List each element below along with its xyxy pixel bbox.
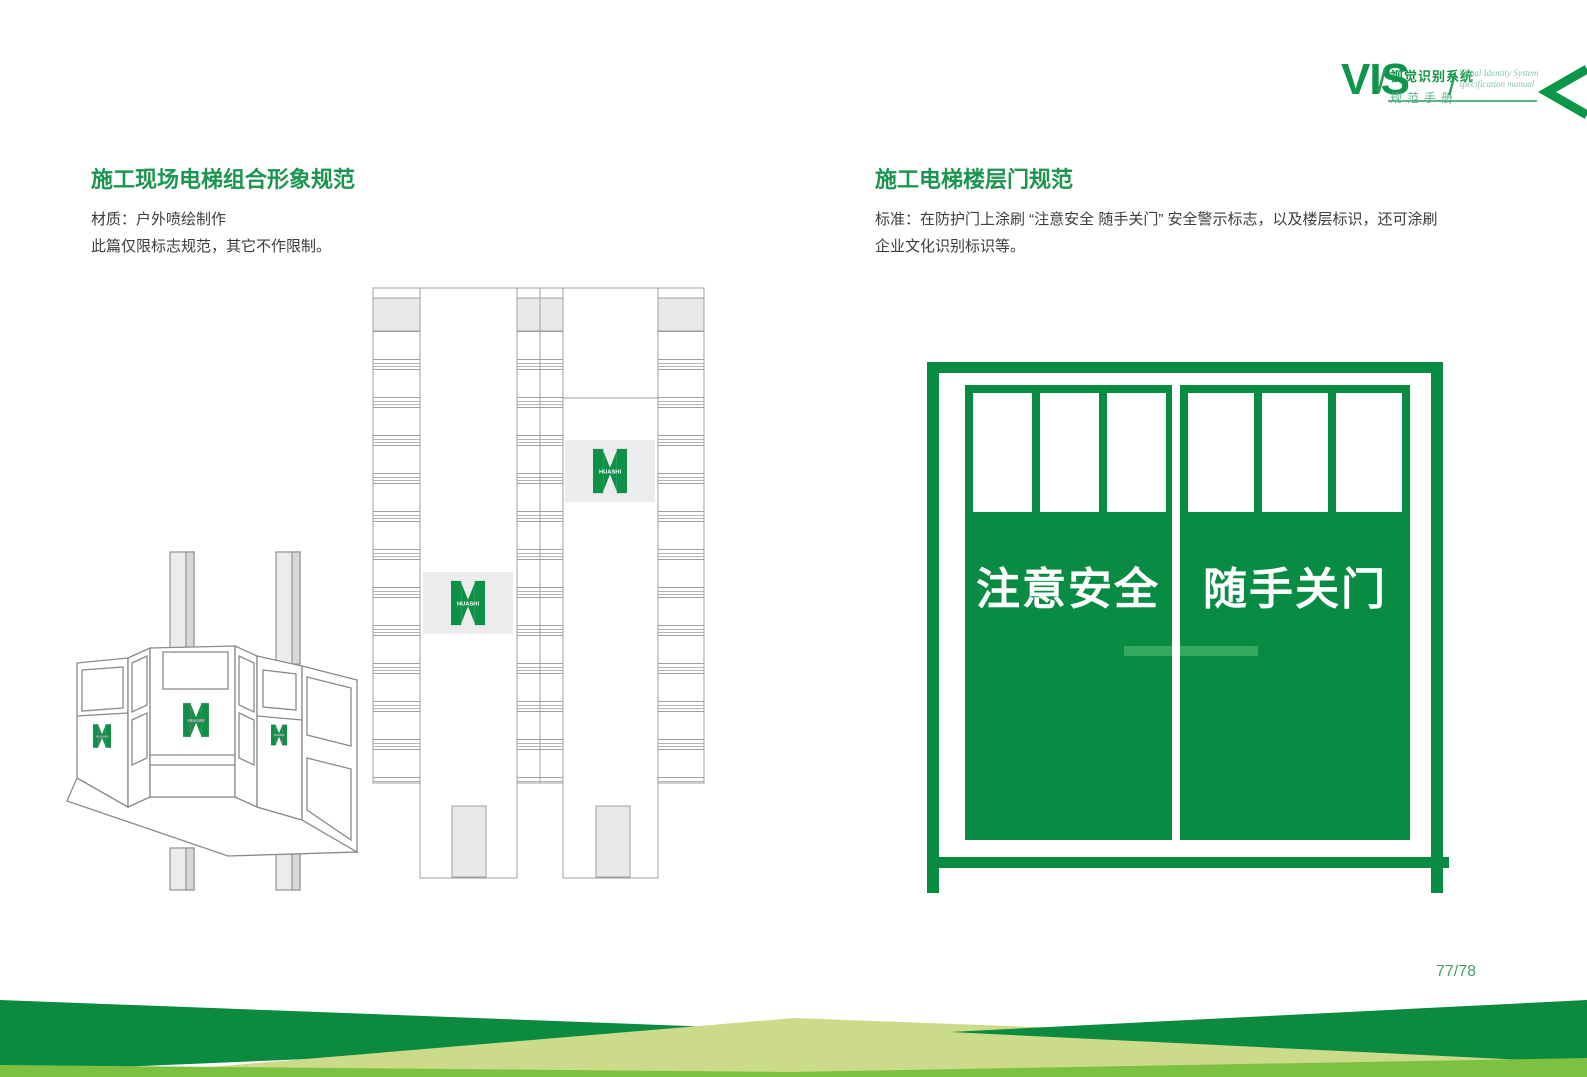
footer-decoration [0, 1000, 1587, 1077]
door-handle-left [1124, 646, 1172, 656]
right-section-title: 施工电梯楼层门规范 [875, 162, 1073, 194]
elevator-cage-drawing [67, 552, 357, 890]
page-number: 77/78 [1436, 963, 1476, 981]
chevron-left-icon [1547, 69, 1587, 115]
header-en-subtitle: specification manual [1459, 79, 1539, 90]
door-warning-text-left: 注意安全 [976, 564, 1160, 614]
cage-panel-left-wing [128, 648, 150, 807]
door-leaf-left: 注意安全 [965, 385, 1172, 840]
right-section-body: 标准：在防护门上涂刷 “注意安全 随手关门” 安全警示标志，以及楼层标识，还可涂… [875, 206, 1520, 260]
header-slash: / [1448, 66, 1456, 106]
header-en-block: Visual Identity System specification man… [1459, 68, 1539, 90]
cage-panel-far-right [257, 656, 302, 820]
cage-panel-center [150, 646, 235, 797]
vis-manual-page: { "header": { "vis": "VIS", "slash1": "/… [0, 0, 1587, 1077]
tower-b-panel [563, 288, 658, 878]
door-leaf-right: 随手关门 [1180, 385, 1410, 840]
header-cn-block: 视觉识别系统 规范手册 [1390, 66, 1448, 106]
cage-door-panel [302, 666, 357, 852]
header-cn-subtitle: 规范手册 [1390, 89, 1448, 106]
tower-a-door [452, 806, 486, 877]
right-body-line1: 标准：在防护门上涂刷 “注意安全 随手关门” 安全警示标志，以及楼层标识，还可涂… [875, 206, 1520, 233]
left-section-body: 材质：户外喷绘制作 此篇仅限标志规范，其它不作限制。 [91, 206, 511, 260]
cage-panel-right-wing [235, 646, 257, 807]
tower-b-door [596, 806, 630, 877]
left-body-line2: 此篇仅限标志规范，其它不作限制。 [91, 233, 511, 260]
left-section-title: 施工现场电梯组合形象规范 [91, 162, 355, 194]
floor-door-illustration: 注意安全 随手关门 [927, 362, 1449, 893]
header-slash: / [1377, 62, 1386, 102]
header-cn-title: 视觉识别系统 [1390, 66, 1448, 85]
right-body-line2: 企业文化识别标识等。 [875, 233, 1520, 260]
door-handle-right [1180, 646, 1258, 656]
tower-a-panel [420, 288, 517, 878]
elevator-towers-drawing [373, 288, 704, 878]
left-body-line1: 材质：户外喷绘制作 [91, 206, 511, 233]
door-warning-text-right: 随手关门 [1203, 565, 1387, 614]
header-en-title: Visual Identity System [1459, 68, 1539, 79]
